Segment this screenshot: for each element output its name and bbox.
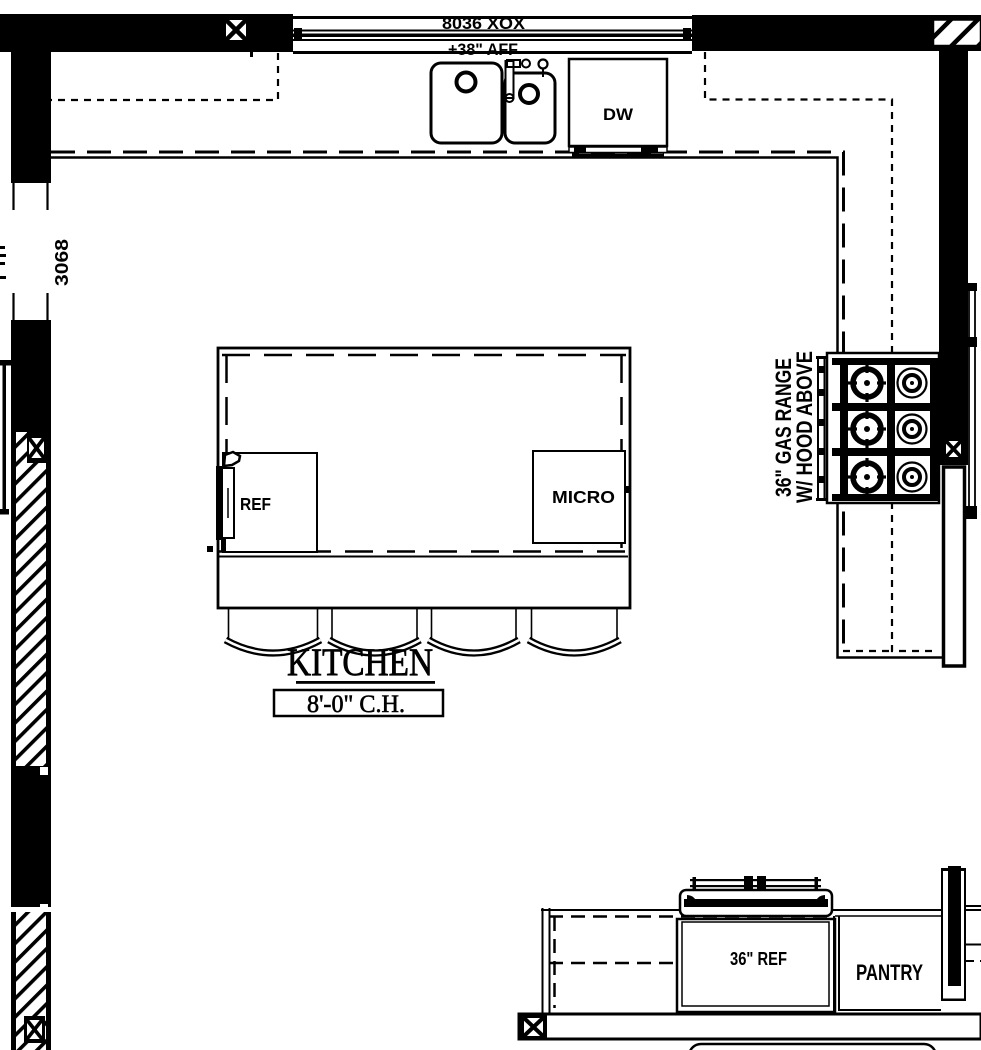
svg-text:PANTRY: PANTRY — [856, 960, 923, 985]
svg-text:MICRO: MICRO — [552, 487, 615, 507]
svg-text:W/ HOOD ABOVE: W/ HOOD ABOVE — [792, 351, 817, 503]
svg-text:DW: DW — [603, 105, 634, 124]
svg-text:KITCHEN: KITCHEN — [287, 641, 433, 684]
svg-text:8'-0" C.H.: 8'-0" C.H. — [307, 691, 405, 718]
svg-text:REF: REF — [240, 494, 271, 514]
svg-text:+38" AFF: +38" AFF — [448, 40, 518, 59]
svg-text:36" REF: 36" REF — [730, 949, 787, 969]
svg-text:3068: 3068 — [52, 239, 72, 286]
svg-text:8036 XOX: 8036 XOX — [442, 14, 526, 33]
